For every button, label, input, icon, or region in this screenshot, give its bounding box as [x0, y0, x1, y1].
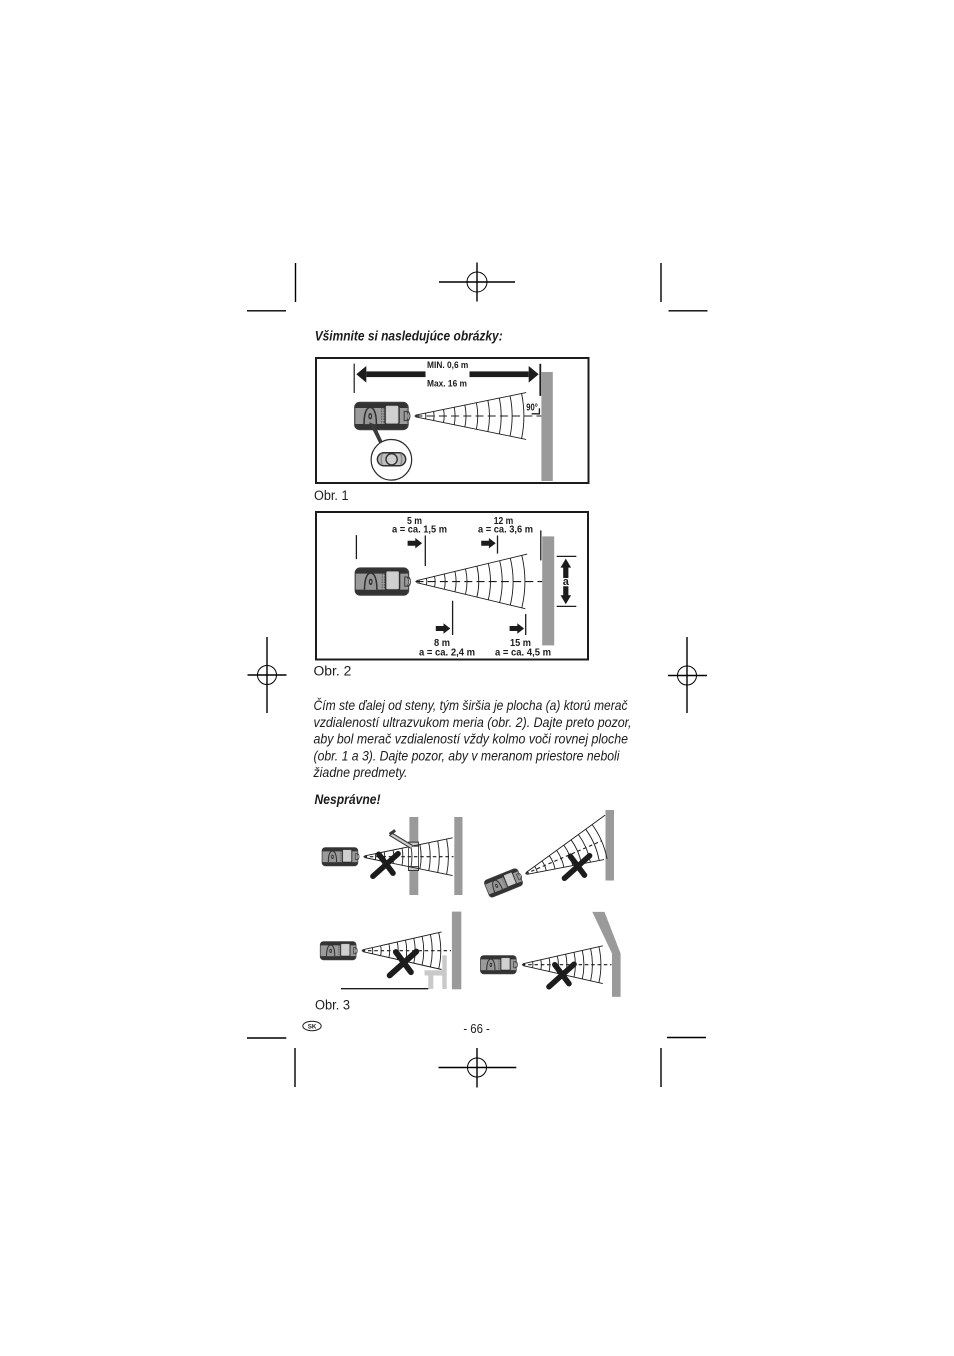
svg-text:Všimnite si nasledujúce obrázk: Všimnite si nasledujúce obrázky: — [315, 328, 503, 344]
svg-text:žiadne predmety.: žiadne predmety. — [313, 764, 408, 780]
svg-text:aby bol merač vzdialeností vžd: aby bol merač vzdialeností vždy kolmo vo… — [314, 731, 629, 747]
svg-text:- 66 -: - 66 - — [463, 1022, 490, 1036]
svg-text:a = ca. 4,5 m: a = ca. 4,5 m — [495, 647, 551, 659]
svg-text:Obr. 1: Obr. 1 — [314, 488, 349, 503]
svg-text:Max. 16 m: Max. 16 m — [427, 379, 467, 390]
svg-text:a = ca. 2,4 m: a = ca. 2,4 m — [419, 647, 475, 659]
svg-text:a = ca. 3,6 m: a = ca. 3,6 m — [478, 524, 533, 536]
svg-text:a = ca. 1,5 m: a = ca. 1,5 m — [392, 524, 447, 536]
svg-text:(obr. 1 a 3). Dajte pozor, aby: (obr. 1 a 3). Dajte pozor, aby v meranom… — [314, 747, 621, 763]
svg-text:Nesprávne!: Nesprávne! — [315, 791, 381, 807]
svg-text:MIN. 0,6 m: MIN. 0,6 m — [427, 360, 468, 371]
svg-text:90°: 90° — [526, 402, 538, 413]
svg-text:Obr. 3: Obr. 3 — [315, 998, 350, 1013]
svg-text:Čím ste ďalej od steny, tým ši: Čím ste ďalej od steny, tým širšia je pl… — [314, 697, 628, 713]
svg-text:a: a — [563, 576, 570, 588]
svg-text:SK: SK — [308, 1023, 317, 1030]
svg-text:Obr. 2: Obr. 2 — [314, 664, 352, 679]
svg-text:vzdialeností ultrazvukom meria: vzdialeností ultrazvukom meria (obr. 2).… — [314, 714, 632, 730]
